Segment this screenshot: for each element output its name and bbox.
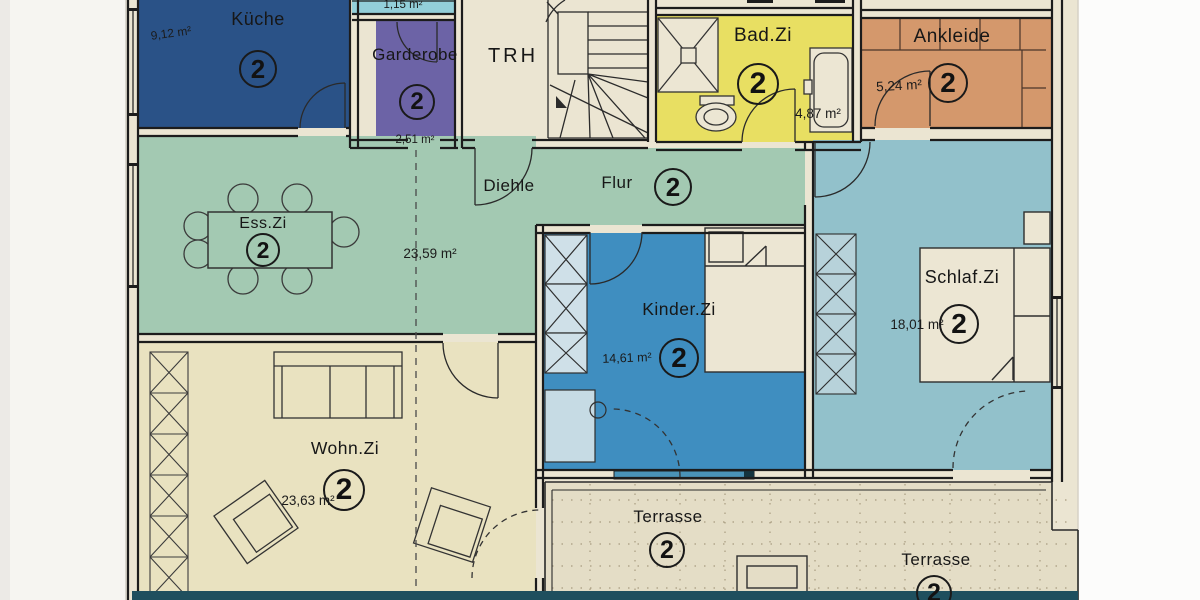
room-name-treppenhaus: TRH [488, 46, 538, 66]
unit-number-ankleide: 2 [928, 63, 968, 103]
floor-plan-canvas: Küche Garderobe TRH Bad.Zi Ankleide Dieh… [0, 0, 1200, 600]
room-name-garderobe: Garderobe [372, 46, 458, 63]
unit-number-garderobe: 2 [399, 84, 435, 120]
room-name-kueche: Küche [231, 10, 285, 28]
shelf-wohnzimmer-icon [150, 352, 188, 598]
wardrobe-schlaf-icon [816, 234, 856, 394]
room-area-garderobe: 2,51 m² [396, 135, 435, 147]
scan-left-margin [0, 0, 128, 600]
room-name-diehle: Diehle [483, 177, 534, 194]
room-name-ankleide: Ankleide [914, 27, 991, 46]
unit-number-kinderzimmer: 2 [659, 338, 699, 378]
room-name-schlafzimmer: Schlaf.Zi [925, 268, 1000, 286]
scan-left-shadow [0, 0, 10, 600]
room-name-flur: Flur [601, 174, 632, 191]
room-name-terrasse-rechts: Terrasse [901, 551, 970, 568]
toilet-icon [696, 96, 736, 131]
unit-number-kueche: 2 [239, 50, 277, 88]
room-area-schlafzimmer: 18,01 m² [890, 318, 943, 332]
unit-number-bad: 2 [737, 63, 779, 105]
room-name-kinderzimmer: Kinder.Zi [642, 301, 716, 319]
room-name-terrasse-links: Terrasse [633, 508, 702, 525]
room-name-esszimmer: Ess.Zi [239, 216, 286, 232]
room-area-abstellkammer: 1,15 m² [384, 0, 423, 12]
room-area-bad: 4,87 m² [795, 107, 841, 121]
terrasse-floor [545, 482, 1078, 600]
room-area-flur: 23,59 m² [403, 247, 456, 261]
room-area-ankleide: 5,24 m² [876, 78, 922, 94]
scan-right-margin [1078, 0, 1200, 600]
bed-kinder-icon [705, 228, 805, 372]
room-name-bad: Bad.Zi [734, 26, 792, 45]
room-name-wohnzimmer: Wohn.Zi [311, 440, 379, 458]
unit-number-terrasse-links: 2 [649, 532, 685, 568]
unit-number-schlafzimmer: 2 [939, 304, 979, 344]
room-area-kinderzimmer: 14,61 m² [602, 351, 652, 365]
unit-number-flur: 2 [654, 168, 692, 206]
wardrobe-kinder-icon [545, 235, 587, 373]
floor-plan-drawing [0, 0, 1200, 600]
unit-number-esszimmer: 2 [246, 233, 280, 267]
shower-icon [658, 18, 718, 92]
room-area-wohnzimmer: 23,63 m² [281, 494, 334, 508]
